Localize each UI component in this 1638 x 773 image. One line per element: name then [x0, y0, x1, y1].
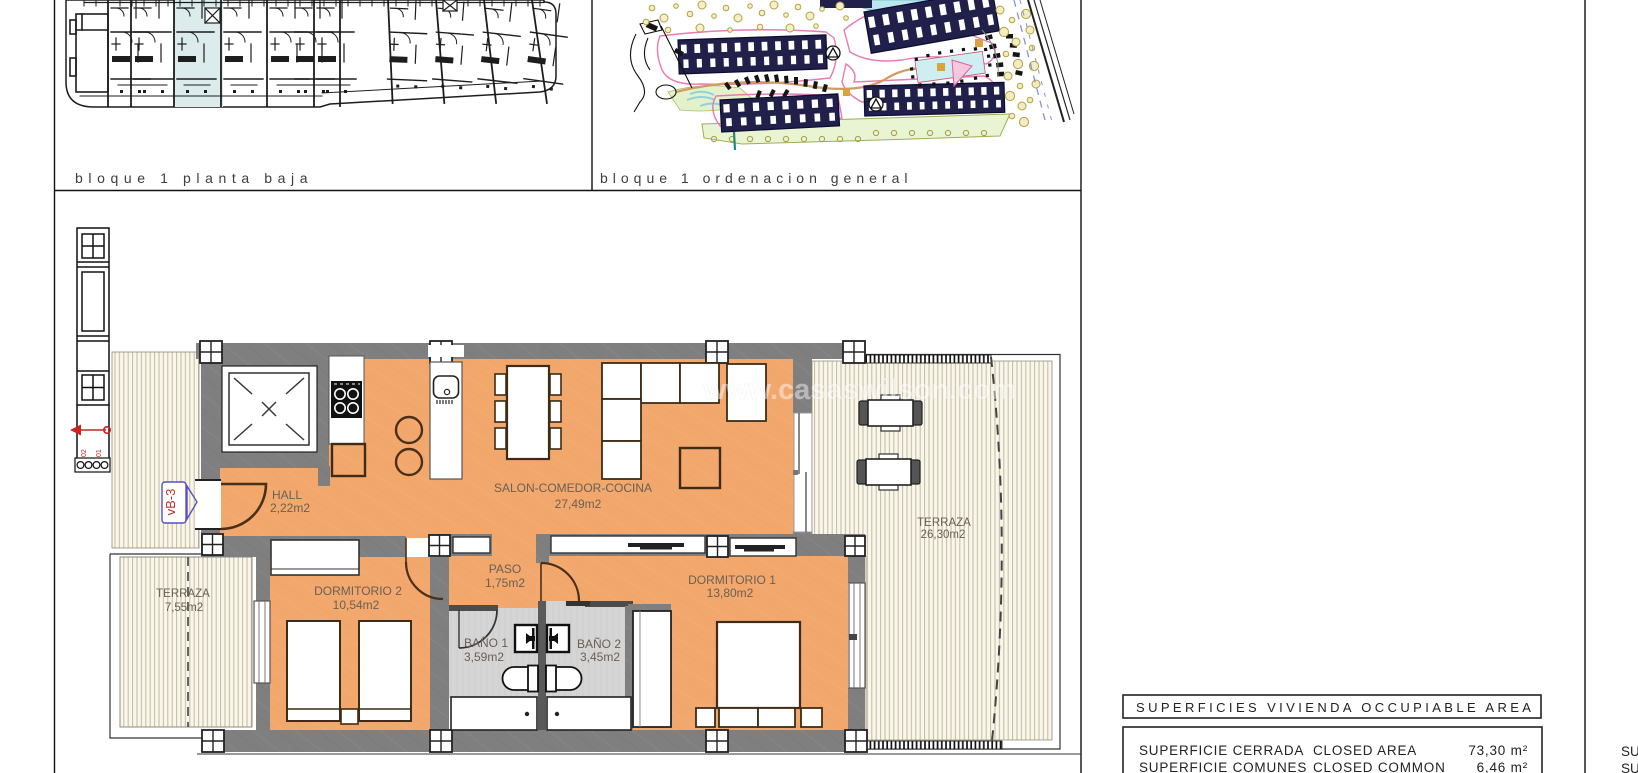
- svg-text:1,75m2: 1,75m2: [485, 576, 525, 590]
- svg-text:CLOSED COMMON: CLOSED COMMON: [1313, 760, 1446, 773]
- svg-text:SUPERFICIES VIVIENDA OCCUPIA: SUPERFICIES VIVIENDA OCCUPIABLE AREA: [1136, 700, 1534, 715]
- svg-text:3,45m2: 3,45m2: [580, 650, 620, 664]
- svg-text:01: 01: [96, 449, 103, 457]
- svg-text:TERRAZA: TERRAZA: [917, 517, 971, 529]
- svg-text:SUPERFICIE CERRADA: SUPERFICIE CERRADA: [1139, 743, 1304, 758]
- svg-text:bloque 1 planta baja: bloque 1 planta baja: [75, 170, 313, 186]
- svg-text:CLOSED AREA: CLOSED AREA: [1313, 743, 1417, 758]
- svg-text:73,30 m²: 73,30 m²: [1468, 743, 1528, 758]
- svg-text:2,22m2: 2,22m2: [270, 501, 310, 515]
- svg-text:27,49m2: 27,49m2: [555, 497, 602, 511]
- svg-text:SALON-COMEDOR-COCINA: SALON-COMEDOR-COCINA: [494, 481, 652, 495]
- svg-text:02: 02: [81, 449, 88, 457]
- svg-text:SU: SU: [1621, 761, 1638, 773]
- svg-text:26,30m2: 26,30m2: [921, 529, 966, 541]
- svg-text:10,54m2: 10,54m2: [333, 598, 380, 612]
- svg-text:BAÑO 2: BAÑO 2: [577, 637, 621, 651]
- svg-text:HALL: HALL: [272, 488, 302, 502]
- svg-text:DORMITORIO 2: DORMITORIO 2: [314, 584, 402, 598]
- svg-text:SUPERFICIE COMUNES: SUPERFICIE COMUNES: [1139, 760, 1307, 773]
- svg-text:DORMITORIO 1: DORMITORIO 1: [688, 573, 776, 587]
- svg-text:6,46 m²: 6,46 m²: [1477, 760, 1528, 773]
- svg-text:3,59m2: 3,59m2: [464, 650, 504, 664]
- svg-text:BAÑO 1: BAÑO 1: [464, 636, 508, 650]
- svg-text:www.casaswilson.com: www.casaswilson.com: [702, 374, 1016, 406]
- svg-text:SU: SU: [1621, 744, 1638, 759]
- svg-text:13,80m2: 13,80m2: [707, 586, 754, 600]
- svg-text:7,55m2: 7,55m2: [165, 602, 203, 614]
- svg-text:PASO: PASO: [489, 562, 521, 576]
- svg-text:bloque 1 ordenacion general: bloque 1 ordenacion general: [600, 170, 912, 186]
- svg-text:TERRAZA: TERRAZA: [156, 588, 210, 600]
- svg-text:vB-3: vB-3: [163, 489, 178, 516]
